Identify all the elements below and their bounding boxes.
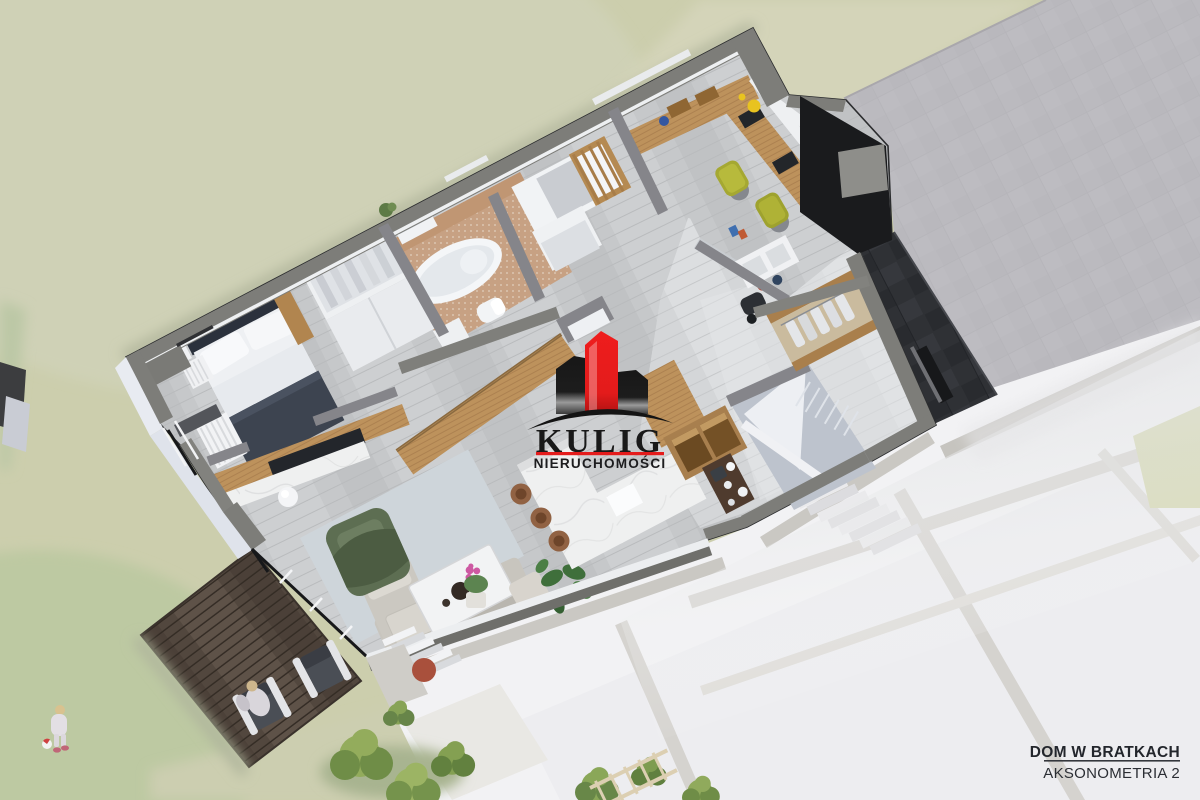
svg-text:NIERUCHOMOŚCI: NIERUCHOMOŚCI <box>534 456 667 471</box>
svg-text:DOM W BRATKACH: DOM W BRATKACH <box>1030 744 1180 761</box>
svg-text:AKSONOMETRIA 2: AKSONOMETRIA 2 <box>1043 765 1180 782</box>
